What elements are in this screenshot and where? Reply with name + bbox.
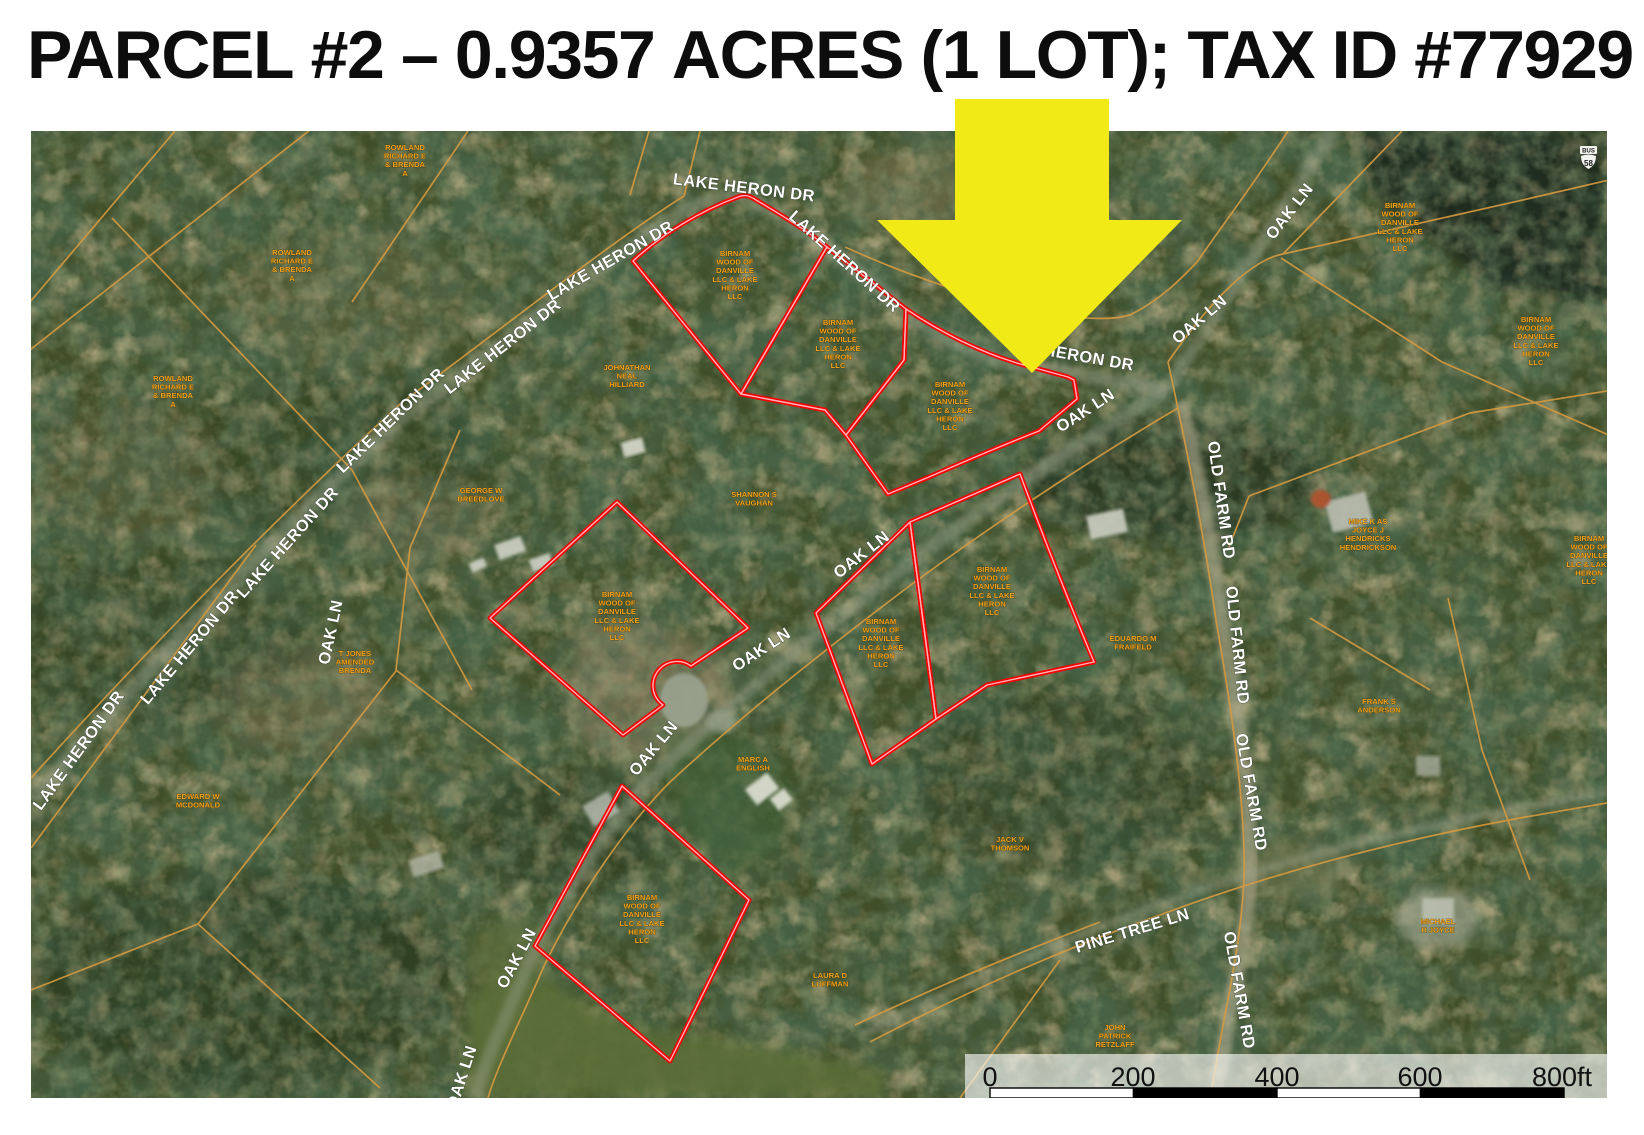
svg-text:LAURA DLUFFMAN: LAURA DLUFFMAN [812, 971, 849, 989]
svg-text:MARC AENGLISH: MARC AENGLISH [736, 755, 770, 773]
svg-text:58: 58 [1584, 159, 1593, 168]
svg-text:FRANK SANDERSON: FRANK SANDERSON [1357, 697, 1400, 715]
svg-text:EDWARD WMCDONALD: EDWARD WMCDONALD [176, 792, 221, 810]
svg-text:GEORGE WBREEDLOVE: GEORGE WBREEDLOVE [457, 486, 504, 504]
svg-text:T JONESAMENDEDBRENDA: T JONESAMENDEDBRENDA [336, 649, 375, 675]
svg-text:BUS: BUS [1582, 149, 1595, 155]
svg-text:EDUARDO MFRAIFELD: EDUARDO MFRAIFELD [1110, 634, 1157, 652]
svg-text:JACK VTHOMSON: JACK VTHOMSON [991, 835, 1030, 853]
svg-text:MICHAELR JOYCE: MICHAELR JOYCE [1421, 917, 1456, 935]
svg-text:SHANNON SVAUGHAN: SHANNON SVAUGHAN [731, 490, 777, 508]
